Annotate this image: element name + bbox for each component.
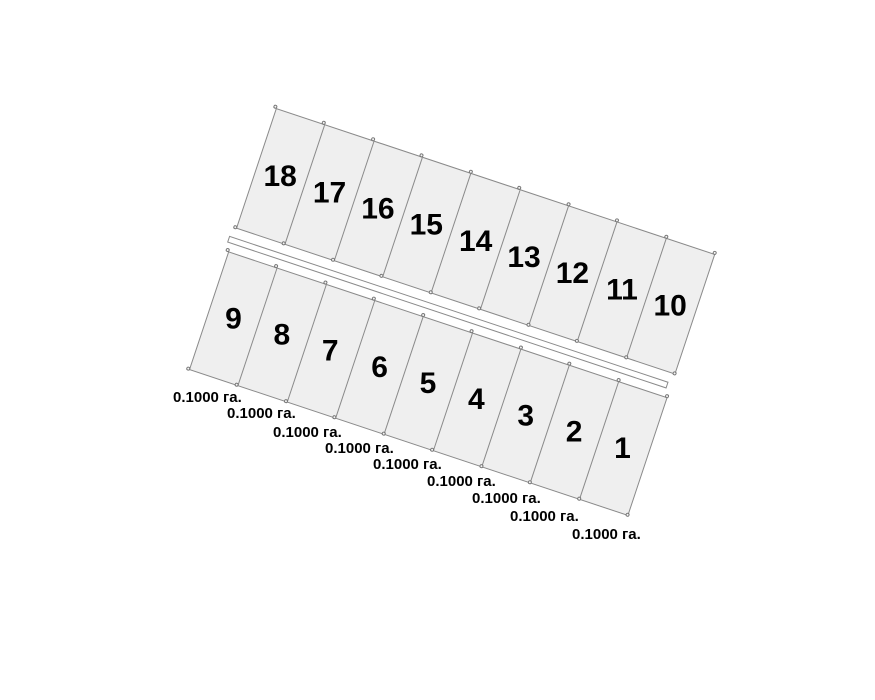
parcel-number-8: 8 [274,320,291,350]
area-label-parcel-3: 0.1000 га. [472,491,541,506]
parcel-number-2: 2 [566,417,583,447]
parcel-number-17: 17 [313,178,346,208]
parcel-number-1: 1 [615,433,632,463]
vertex-dot [664,394,669,399]
area-label-parcel-9: 0.1000 га. [173,390,242,405]
parcel-number-7: 7 [322,336,339,366]
vertex-dot [625,512,630,517]
cadastral-plan-canvas: 181716151413121110 987654321 0.1000 га.0… [0,0,875,700]
parcel-number-18: 18 [264,162,297,192]
area-label-parcel-6: 0.1000 га. [325,441,394,456]
parcel-number-5: 5 [420,369,437,399]
parcel-number-12: 12 [556,259,589,289]
area-label-parcel-7: 0.1000 га. [273,425,342,440]
area-label-parcel-4: 0.1000 га. [427,474,496,489]
parcel-number-9: 9 [225,304,242,334]
area-label-parcel-2: 0.1000 га. [510,509,579,524]
parcel-number-16: 16 [361,194,394,224]
area-label-parcel-1: 0.1000 га. [572,527,641,542]
parcel-number-6: 6 [371,352,388,382]
vertex-dot [712,250,717,255]
parcel-number-14: 14 [459,226,492,256]
parcel-number-13: 13 [508,243,541,273]
area-label-parcel-5: 0.1000 га. [373,457,442,472]
parcel-number-11: 11 [606,275,638,305]
area-label-parcel-8: 0.1000 га. [227,406,296,421]
parcel-number-10: 10 [654,291,687,321]
parcel-number-3: 3 [517,401,534,431]
parcel-number-15: 15 [410,210,443,240]
vertex-dot [672,371,677,376]
plan-rotated-group: 181716151413121110 987654321 [189,108,715,516]
parcel-number-4: 4 [469,385,486,415]
